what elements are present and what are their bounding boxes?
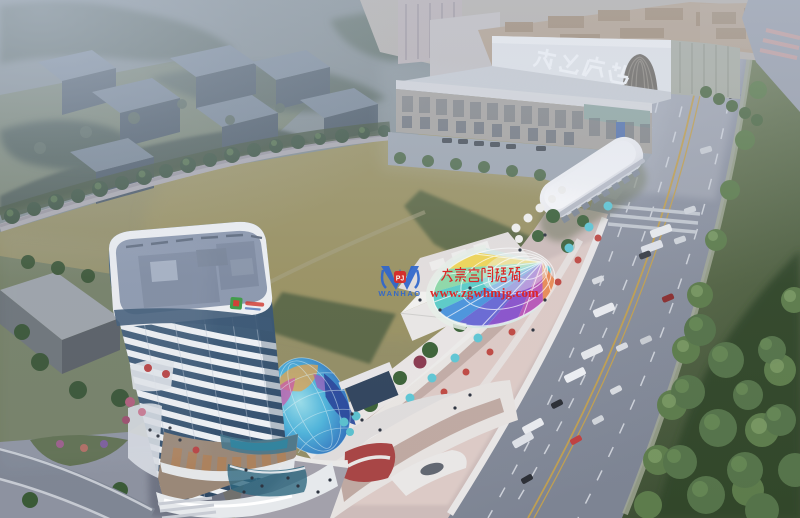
svg-text:PJ: PJ	[396, 276, 405, 283]
svg-text:WANHAO: WANHAO	[378, 289, 421, 298]
svg-text:www.zgwhmjg.com: www.zgwhmjg.com	[430, 286, 539, 300]
